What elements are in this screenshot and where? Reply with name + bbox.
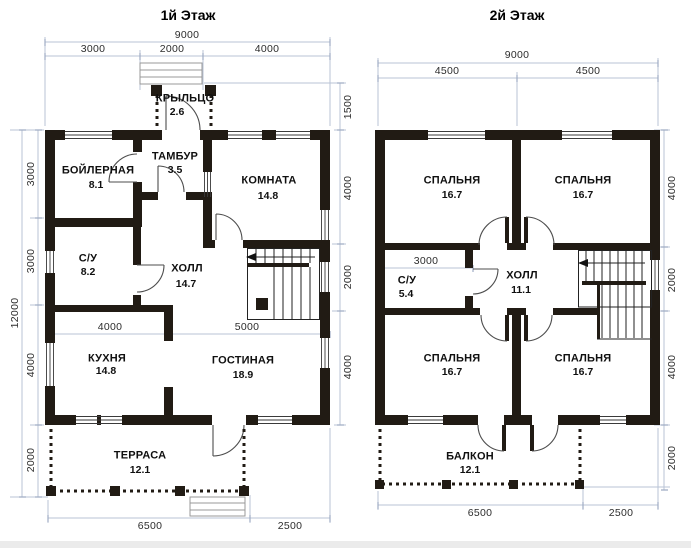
- plan2-dim-bottom-0: 6500: [468, 508, 493, 519]
- plan1-dim-inner-1: 5000: [235, 322, 260, 333]
- plan2-room-bedroom-tr-name: СПАЛЬНЯ: [555, 176, 612, 187]
- plan2-dim-top-total: 9000: [505, 50, 530, 61]
- plan1-dim-left-0: 3000: [26, 162, 37, 187]
- plan1-room-kitchen-area: 14.8: [96, 366, 116, 377]
- plan1-room-living-area: 18.9: [233, 370, 253, 381]
- plan1-room-komnata-area: 14.8: [258, 191, 278, 202]
- plan1-dim-bottom-1: 2500: [278, 521, 303, 532]
- plan2-room-wc-area: 5.4: [399, 289, 414, 300]
- plan1-dim-right-2: 2000: [343, 265, 354, 290]
- plan2-room-balcony-area: 12.1: [460, 465, 480, 476]
- plan1-room-porch-area: 2.6: [170, 107, 185, 118]
- plan2-room-bedroom-bl-name: СПАЛЬНЯ: [424, 354, 481, 365]
- plan2-room-bedroom-br-name: СПАЛЬНЯ: [555, 354, 612, 365]
- bottom-strip: [0, 541, 691, 548]
- dimension-lines: [10, 37, 670, 523]
- plan2-room-wc-name: С/У: [398, 276, 416, 287]
- plan1-dim-top-2: 4000: [255, 44, 280, 55]
- plan2-room-balcony-name: БАЛКОН: [446, 452, 494, 463]
- plan2-room-bedroom-tl-area: 16.7: [442, 190, 462, 201]
- plan1-room-living-name: ГОСТИНАЯ: [212, 356, 274, 367]
- plan2-room-hall-area: 11.1: [511, 285, 531, 296]
- plan2-dim-right-1: 2000: [667, 268, 678, 293]
- plan1-dim-left-total: 12000: [10, 298, 21, 329]
- plan2-room-bedroom-bl-area: 16.7: [442, 367, 462, 378]
- plan1-room-wc-name: С/У: [79, 254, 97, 265]
- plan2-title: 2й Этаж: [490, 8, 545, 22]
- plan2-dim-right-0: 4000: [667, 176, 678, 201]
- plan1-dim-right-3: 4000: [343, 355, 354, 380]
- plan1-room-hall-name: ХОЛЛ: [171, 264, 203, 275]
- plan1-room-porch-name: КРЫЛЬЦО: [156, 94, 214, 105]
- plan1-room-wc-area: 8.2: [81, 267, 96, 278]
- plan1-dim-top-0: 3000: [81, 44, 106, 55]
- plan1-title: 1й Этаж: [161, 8, 216, 22]
- plan2-dim-bottom-1: 2500: [609, 508, 634, 519]
- plan1-dim-bottom-0: 6500: [138, 521, 163, 532]
- plan2-dim-right-3: 2000: [667, 446, 678, 471]
- plan1-room-komnata-name: КОМНАТА: [241, 176, 296, 187]
- plan2-dim-right-2: 4000: [667, 355, 678, 380]
- plan1-stairs: [246, 248, 320, 320]
- plan2-dim-top-0: 4500: [435, 66, 460, 77]
- plan1-room-tambur-area: 3.5: [168, 165, 183, 176]
- plan1-dim-right-0: 1500: [343, 95, 354, 120]
- plan2-room-bedroom-tl-name: СПАЛЬНЯ: [424, 176, 481, 187]
- plan1-dim-right-1: 4000: [343, 176, 354, 201]
- plan1-room-terrace-area: 12.1: [130, 465, 150, 476]
- floor-plan-canvas: 1й Этаж 2й Этаж КРЫЛЬЦО 2.6 ТАМБУР 3.5 Б…: [0, 0, 691, 548]
- plan2-dim-top-1: 4500: [576, 66, 601, 77]
- plan1-room-terrace-name: ТЕРРАСА: [114, 451, 166, 462]
- plan2-room-bedroom-tr-area: 16.7: [573, 190, 593, 201]
- plan1-room-boiler-name: БОЙЛЕРНАЯ: [62, 166, 134, 177]
- plan1-dim-inner-0: 4000: [98, 322, 123, 333]
- plan1-dim-left-1: 3000: [26, 249, 37, 274]
- plan2-dim-inner-0: 3000: [414, 256, 439, 267]
- plan1-room-tambur-name: ТАМБУР: [152, 152, 198, 163]
- plan1-dim-left-2: 4000: [26, 353, 37, 378]
- plan1-room-hall-area: 14.7: [176, 279, 196, 290]
- plan1-room-boiler-area: 8.1: [89, 180, 104, 191]
- plan2-stairs: [578, 250, 652, 339]
- plan1-room-kitchen-name: КУХНЯ: [88, 354, 126, 365]
- plan1-dim-left-3: 2000: [26, 448, 37, 473]
- plan1-dim-top-total: 9000: [175, 30, 200, 41]
- plan1-dim-top-1: 2000: [160, 44, 185, 55]
- plan2-room-hall-name: ХОЛЛ: [506, 271, 538, 282]
- plan2-room-bedroom-br-area: 16.7: [573, 367, 593, 378]
